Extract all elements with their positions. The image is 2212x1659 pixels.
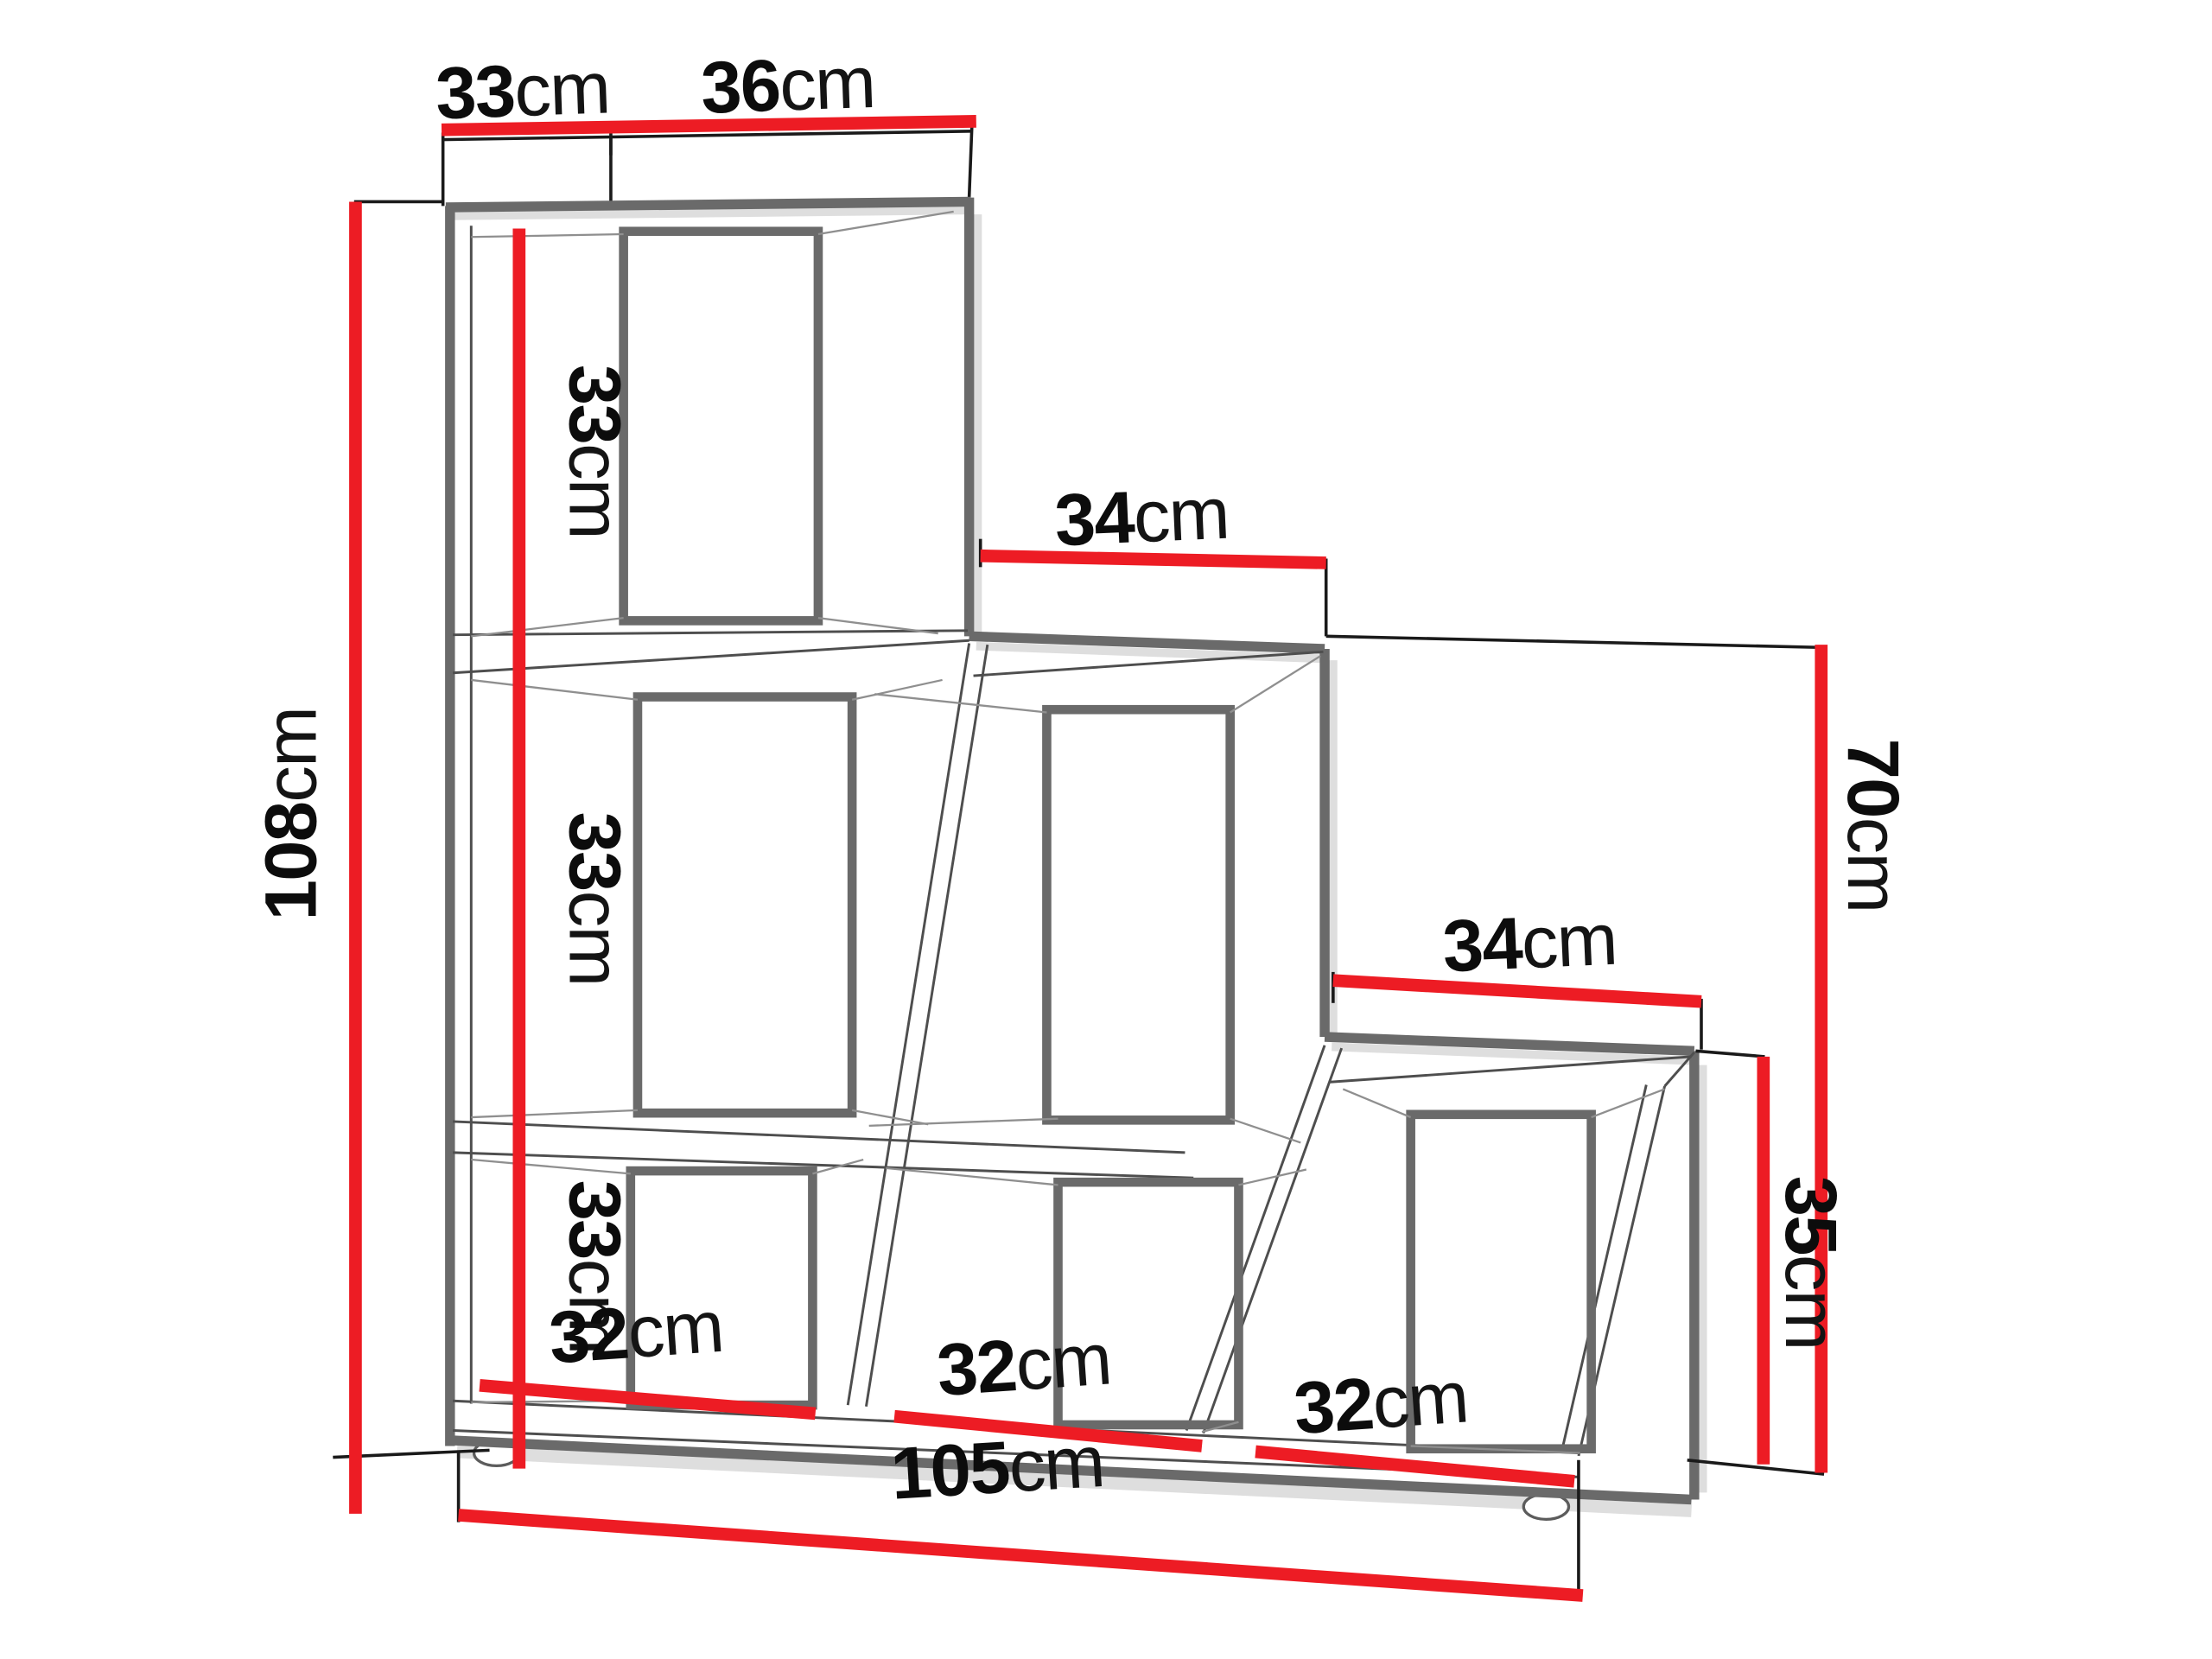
label-cell1-width: 32cm <box>546 1285 725 1379</box>
label-cell2-width: 32cm <box>934 1317 1113 1411</box>
label-top-depth: 33cm <box>435 46 611 134</box>
label-cell3-width: 32cm <box>1291 1355 1470 1449</box>
label-total-width: 105cm <box>888 1420 1106 1515</box>
label-right-step-width: 34cm <box>1441 898 1618 988</box>
top-face <box>442 124 972 207</box>
label-top-width: 36cm <box>700 41 876 129</box>
step-shelf-dimension-diagram: 33cm 36cm 108cm 33cm 33cm 33cm 34cm 34cm… <box>0 0 2212 1659</box>
label-total-height: 108cm <box>250 708 332 921</box>
label-right-step-height: 35cm <box>1770 1176 1853 1350</box>
cubby-col1-row1 <box>624 232 818 621</box>
cubby-col2-row1 <box>1046 709 1230 1120</box>
label-shelf-height-1: 33cm <box>555 365 637 538</box>
depth-lines <box>471 212 1664 1453</box>
cubby-col1-row2 <box>638 697 852 1114</box>
label-middle-step-width: 34cm <box>1053 472 1230 562</box>
label-shelf-height-2: 33cm <box>555 811 637 985</box>
cubby-openings <box>624 232 1592 1449</box>
dim-line-middle-step-width <box>981 556 1326 563</box>
dimension-labels: 33cm 36cm 108cm 33cm 33cm 33cm 34cm 34cm… <box>250 41 1915 1515</box>
label-middle-step-height: 70cm <box>1833 739 1915 912</box>
dim-line-total-width <box>459 1515 1583 1595</box>
diagram-page: 33cm 36cm 108cm 33cm 33cm 33cm 34cm 34cm… <box>0 0 2212 1659</box>
